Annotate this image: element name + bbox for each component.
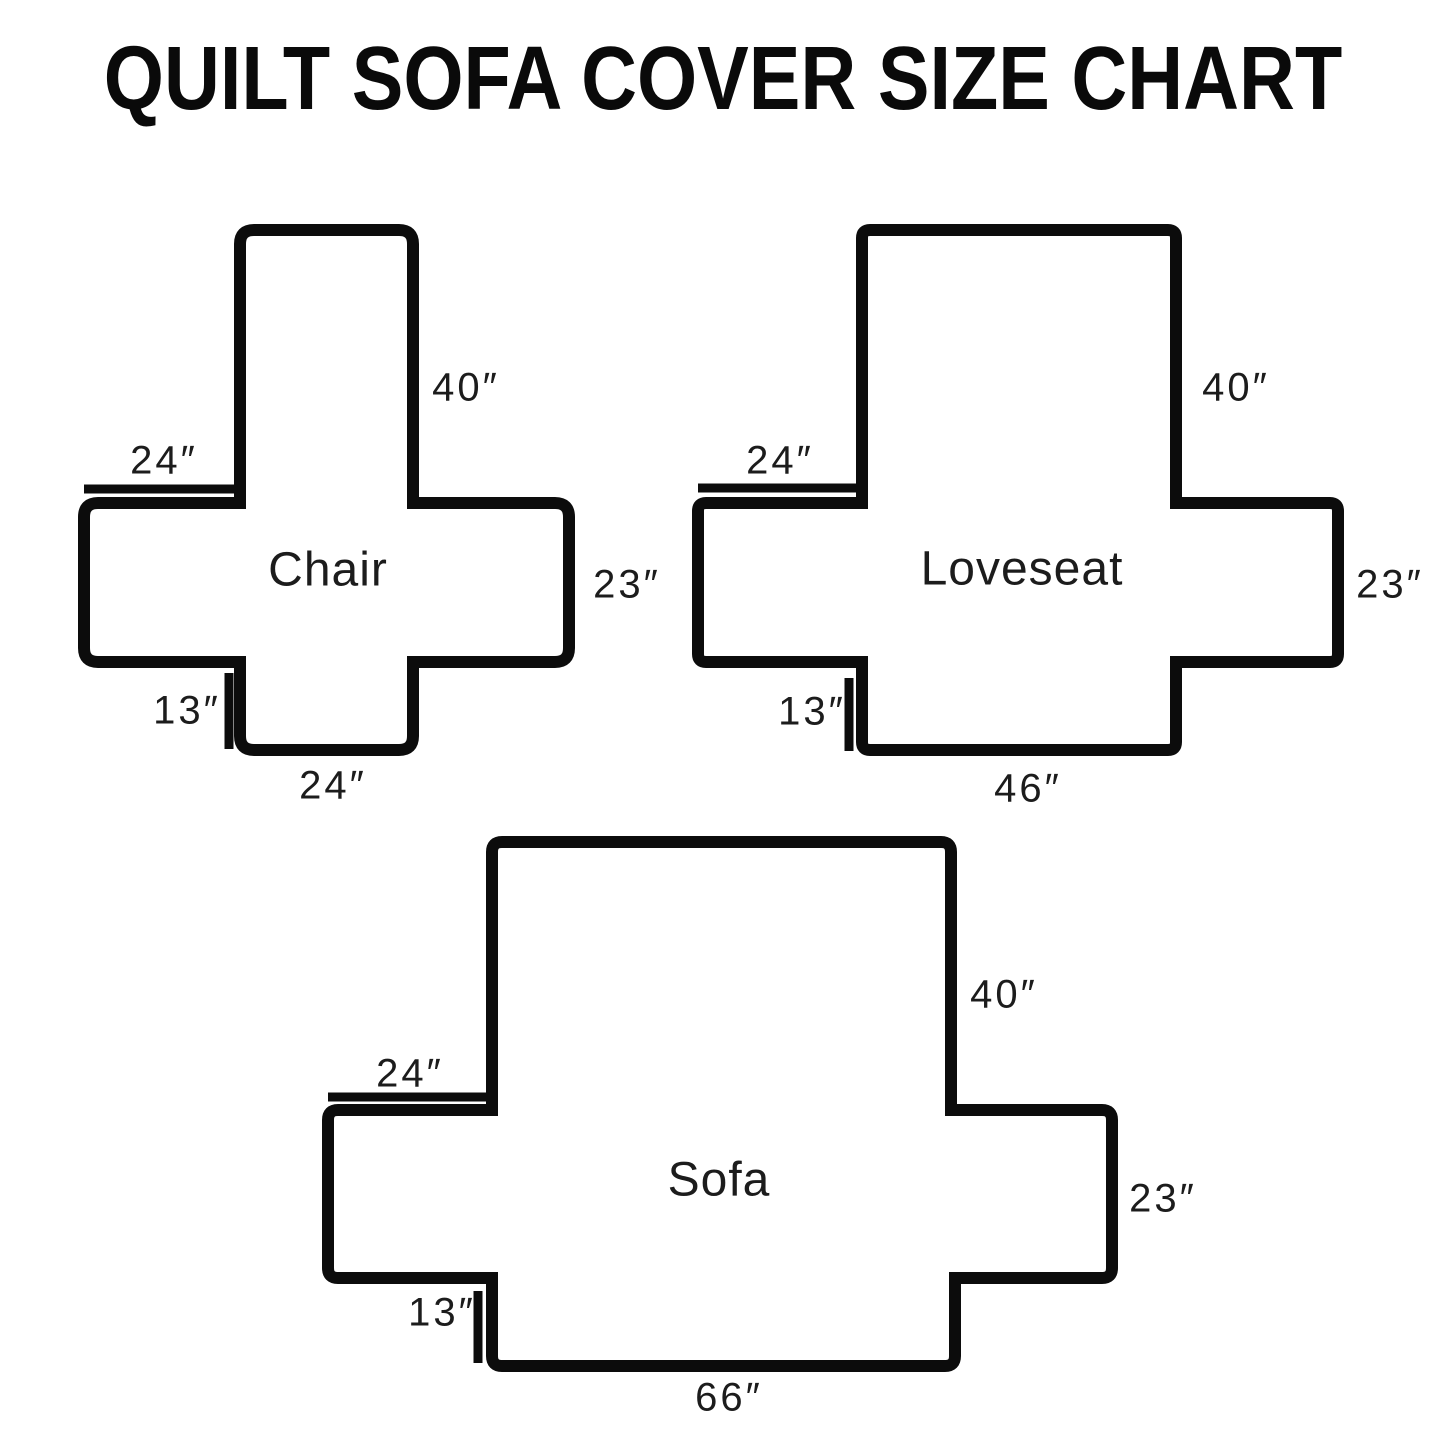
chair-back-height-label: 40″	[432, 366, 500, 411]
loveseat-seat-width-label: 46″	[994, 767, 1062, 812]
loveseat-side-height-label: 23″	[1356, 563, 1424, 608]
chair-side-height-label: 23″	[593, 563, 661, 608]
loveseat-back-height-label: 40″	[1202, 366, 1270, 411]
loveseat-arm-width-label: 24″	[746, 439, 814, 484]
loveseat-name-label: Loveseat	[921, 542, 1124, 597]
quilt-sofa-cover-size-chart: QUILT SOFA COVER SIZE CHART 40″ 24″ Chai…	[0, 0, 1445, 1435]
sofa-seat-width-label: 66″	[695, 1376, 763, 1421]
loveseat-tuck-height-label: 13″	[778, 690, 846, 735]
sofa-arm-width-label: 24″	[376, 1052, 444, 1097]
sofa-name-label: Sofa	[668, 1153, 771, 1208]
chair-seat-width-label: 24″	[299, 764, 367, 809]
chair-tuck-height-label: 13″	[153, 689, 221, 734]
chair-name-label: Chair	[268, 543, 388, 598]
sofa-cover-outline	[328, 842, 1112, 1366]
sofa-side-height-label: 23″	[1129, 1177, 1197, 1222]
sofa-tuck-height-label: 13″	[408, 1291, 476, 1336]
sofa-back-height-label: 40″	[970, 973, 1038, 1018]
chair-arm-width-label: 24″	[130, 439, 198, 484]
